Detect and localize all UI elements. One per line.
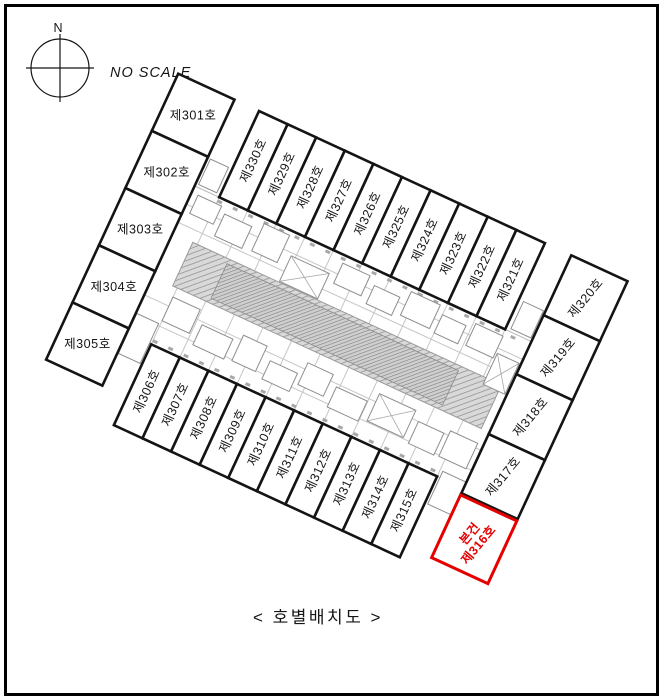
unit-label-303: 제303호 bbox=[117, 223, 164, 237]
unit-label-301: 제301호 bbox=[170, 108, 217, 122]
building-assembly: 제330호 제329호 제328호 제327호 제326호 제325호 제324… bbox=[33, 74, 627, 596]
unit-label-305: 제305호 bbox=[64, 337, 111, 351]
compass-rose: N bbox=[26, 21, 94, 102]
site-plan-page: N NO SCALE bbox=[0, 0, 663, 700]
unit-label-304: 제304호 bbox=[91, 280, 138, 294]
drawing-caption: < 호별배치도 > bbox=[253, 608, 383, 627]
unit-label-302: 제302호 bbox=[143, 165, 190, 179]
north-label: N bbox=[53, 21, 62, 35]
